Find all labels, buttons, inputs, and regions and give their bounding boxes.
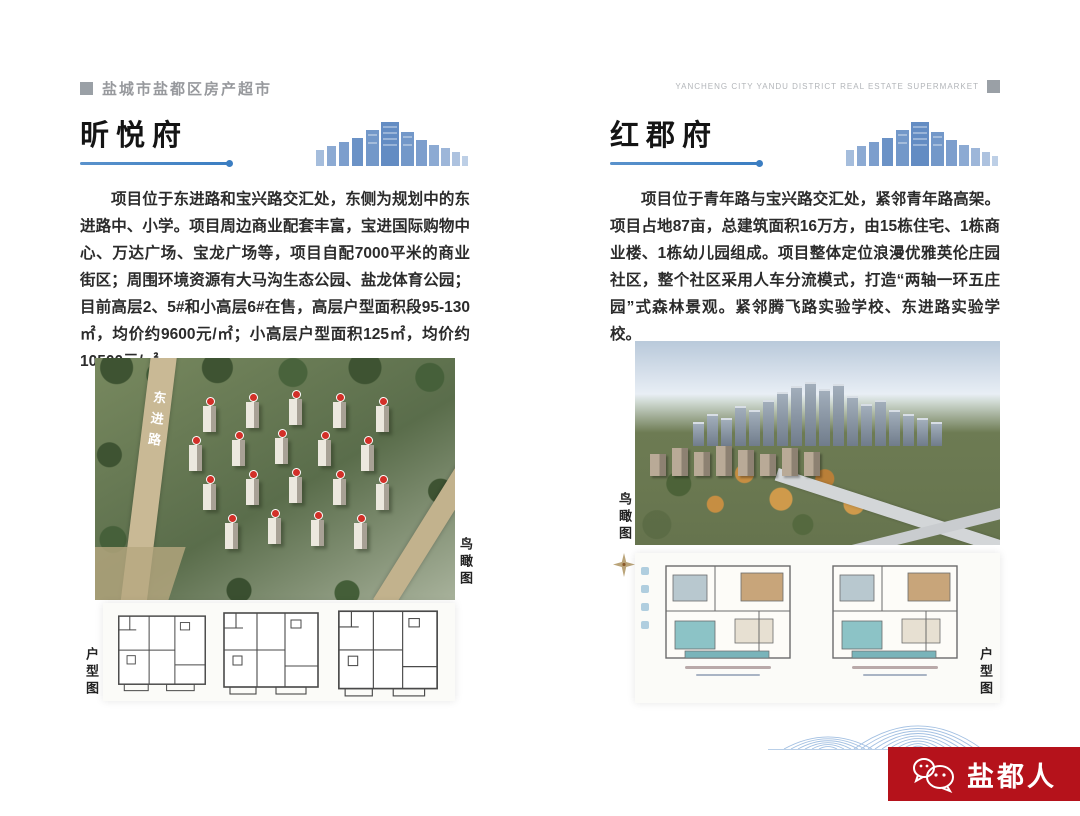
floorplan-caption-line — [685, 666, 771, 669]
listing-section-hongjunfu: 红郡府 — [610, 118, 1000, 375]
aerial-view-photo-hongjunfu — [635, 341, 1000, 545]
residential-tower — [354, 523, 367, 549]
residential-tower — [289, 399, 302, 425]
header-left-title: 盐城市盐都区房产超市 — [102, 78, 272, 99]
residential-tower — [318, 440, 331, 466]
listing-description: 项目位于青年路与宝兴路交汇处，紧邻青年路高架。项目占地87亩，总建筑面积16万方… — [610, 186, 1000, 348]
residential-tower — [246, 402, 259, 428]
city-skyline-icon — [844, 120, 1000, 172]
header-right: YANCHENG CITY YANDU DISTRICT REAL ESTATE… — [675, 80, 1000, 93]
listing-title: 昕悦府 — [80, 118, 188, 153]
residential-tower — [333, 479, 346, 505]
floorplan-label: 户型图 — [976, 647, 995, 698]
header-left: 盐城市盐都区房产超市 — [80, 78, 272, 99]
residential-tower — [275, 438, 288, 464]
aerial-view-photo-xinyuefu: 东进路 宝兴路 — [95, 358, 455, 600]
residential-tower — [333, 402, 346, 428]
aerial-view-label: 鸟瞰图 — [456, 537, 475, 588]
floorplan-photo-xinyuefu — [103, 603, 455, 701]
floorplan-drawing — [663, 563, 793, 661]
residential-tower — [268, 518, 281, 544]
floorplan-drawing — [830, 563, 960, 661]
mid-rise-buildings — [650, 427, 906, 476]
floorplan-card — [830, 563, 960, 676]
floorplan-label: 户型图 — [82, 647, 101, 698]
brochure-page: 盐城市盐都区房产超市 YANCHENG CITY YANDU DISTRICT … — [0, 0, 1080, 816]
mid-rise-building — [782, 448, 798, 476]
residential-tower — [376, 484, 389, 510]
floorplan-drawing — [116, 608, 208, 696]
mid-rise-building — [650, 454, 666, 476]
residential-tower — [203, 406, 216, 432]
residential-tower — [225, 523, 238, 549]
mid-rise-building — [672, 448, 688, 476]
compass-icon — [611, 551, 637, 579]
listing-title-row: 红郡府 — [610, 118, 1000, 170]
residential-tower — [246, 479, 259, 505]
brand-name: 盐都人 — [967, 755, 1057, 794]
floorplan-caption-line — [863, 674, 927, 676]
residential-tower — [203, 484, 216, 510]
floorplan-photo-hongjunfu — [635, 553, 1000, 703]
mid-rise-building — [804, 452, 820, 476]
residential-tower — [189, 445, 202, 471]
residential-tower — [361, 445, 374, 471]
listing-title-row: 昕悦府 — [80, 118, 470, 170]
residential-tower — [311, 520, 324, 546]
header-right-title: YANCHENG CITY YANDU DISTRICT REAL ESTATE… — [675, 82, 979, 91]
header-right-marker-icon — [987, 80, 1000, 93]
wave-hills-decoration — [768, 705, 1008, 751]
brand-badge: 盐都人 — [888, 747, 1080, 801]
elevated-road — [775, 468, 1000, 545]
floorplan-drawing — [334, 606, 442, 698]
mid-rise-building — [738, 450, 754, 476]
highrise-silhouette — [917, 418, 928, 446]
title-underline — [610, 162, 760, 165]
residential-tower — [376, 406, 389, 432]
residential-tower — [289, 477, 302, 503]
residential-tower — [232, 440, 245, 466]
floorplan-caption-line — [852, 666, 938, 669]
aerial-view-label: 鸟瞰图 — [615, 492, 634, 543]
listing-description: 项目位于东进路和宝兴路交汇处，东侧为规划中的东进路中、小学。项目周边商业配套丰富… — [80, 186, 470, 375]
wechat-icon — [911, 755, 957, 793]
mid-rise-building — [716, 446, 732, 476]
header-left-marker-icon — [80, 82, 93, 95]
city-skyline-icon — [314, 120, 470, 172]
title-underline — [80, 162, 230, 165]
mid-rise-building — [694, 452, 710, 476]
floorplan-drawing — [221, 608, 321, 696]
floorplan-caption-line — [696, 674, 760, 676]
floorplan-legend-marks — [641, 567, 649, 629]
floorplan-card — [663, 563, 793, 676]
listing-title: 红郡府 — [610, 118, 718, 153]
building-cluster — [95, 358, 455, 600]
mid-rise-building — [760, 454, 776, 476]
